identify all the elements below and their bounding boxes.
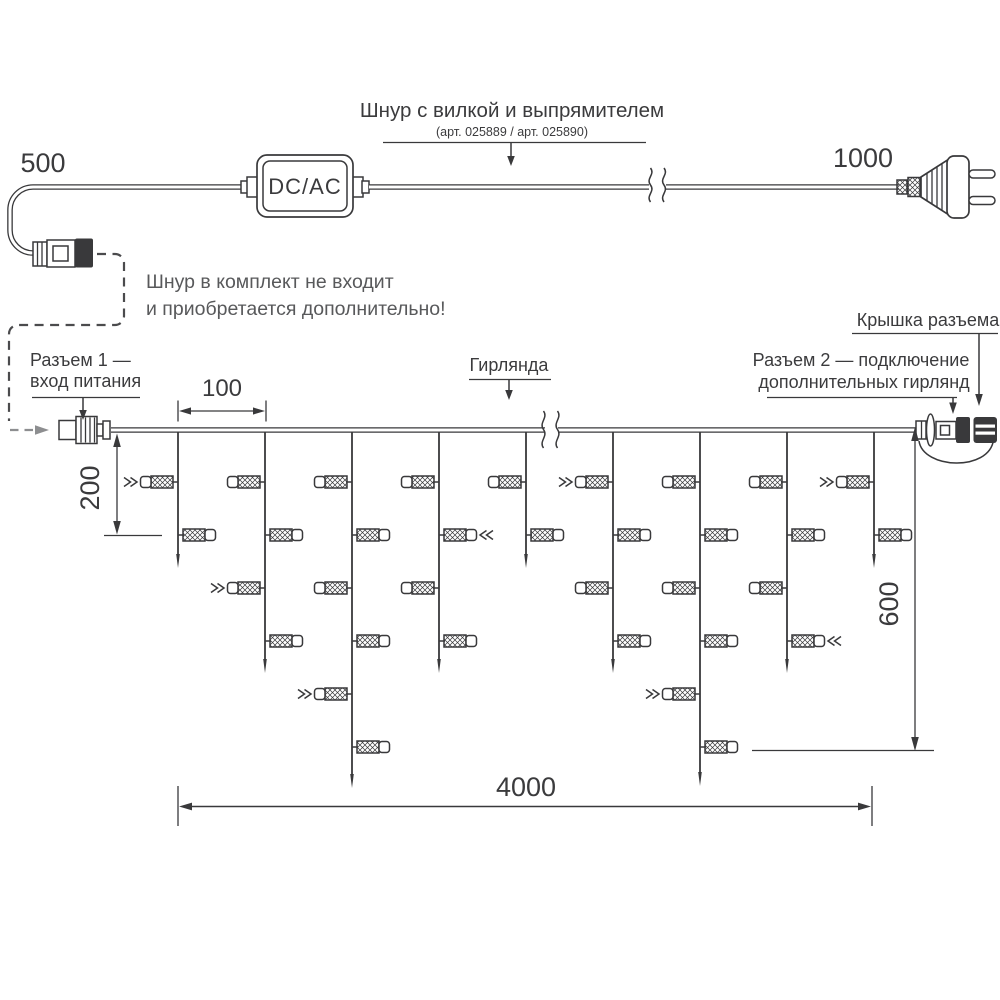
icicle-drops-layer [124,432,912,788]
lamp-body [586,476,608,488]
lamp-body [705,529,727,541]
lamp-body [270,529,292,541]
drop-wire-tip [350,774,354,788]
lamp-tip [837,477,848,488]
lamp-body [673,688,695,700]
dimension-4000: 4000 [178,772,872,826]
lamp-tip [750,477,761,488]
lamp-body [760,582,782,594]
cord-length-right-label: 1000 [833,143,893,173]
drop-wire-tip [872,554,876,568]
lamp-body [444,529,466,541]
lamp-tip [727,742,738,753]
lamp-tip [750,583,761,594]
lamp-body [879,529,901,541]
not-included-note-line1: Шнур в комплект не входит [146,271,394,293]
cable-break-icon [663,168,666,202]
wiring-diagram-canvas: 500 1000 Шнур с вилкой и выпрямителем (а… [0,0,1000,1000]
not-included-note-line2: и приобретается дополнительно! [146,298,446,320]
lamp-tip [576,477,587,488]
connector1-label-line2: вход питания [30,371,141,391]
lamp-body [270,635,292,647]
dimension-200-value: 200 [75,465,105,510]
lamp-tip [315,689,326,700]
flash-marker-icon [646,690,659,699]
lamp-tip [292,530,303,541]
lamp-tip [814,530,825,541]
unplugged-cord-dashed-path [9,254,124,421]
dimension-600-value: 600 [874,581,904,626]
lamp-body [618,635,640,647]
drop-wire-tip [698,772,702,786]
lamp-tip [814,636,825,647]
connector1-label-group: Разъем 1 — вход питания [30,350,141,420]
lamp-body [792,529,814,541]
lamp-tip [727,636,738,647]
lamp-body [357,741,379,753]
lamp-body [412,582,434,594]
plug-prong [969,170,995,178]
down-arrow-icon [507,156,515,166]
dimension-arrow-icon [858,803,871,811]
down-arrow-icon [505,390,513,400]
lamp-tip [489,477,500,488]
output-connector [956,417,970,443]
cord-title: Шнур с вилкой и выпрямителем [360,99,664,122]
lamp-body [586,582,608,594]
lamp-body [618,529,640,541]
flash-marker-icon [480,531,493,540]
dimension-arrow-icon [113,521,121,535]
lamp-tip [379,742,390,753]
lamp-body [357,635,379,647]
dimension-arrow-icon [253,407,265,414]
drop-wire-tip [263,659,267,673]
connector2-label-group: Разъем 2 — подключение дополнительных ги… [753,350,970,414]
lamp-body [673,476,695,488]
dimension-arrow-icon [911,737,919,751]
lamp-tip [727,530,738,541]
lamp-tip [402,477,413,488]
flash-marker-icon [211,584,224,593]
lamp-body [847,476,869,488]
lamp-tip [663,477,674,488]
drop-wire-tip [437,659,441,673]
cord-length-left-label: 500 [20,148,65,178]
lamp-body [673,582,695,594]
dimension-100-value: 100 [202,375,242,402]
flash-marker-icon [820,478,833,487]
cable-break-icon [649,168,652,202]
lamp-tip [315,583,326,594]
dimension-4000-value: 4000 [496,772,556,802]
connector2-label-line2: дополнительных гирлянд [758,372,970,392]
connector2-label-line1: Разъем 2 — подключение [753,350,970,370]
lamp-tip [466,636,477,647]
lamp-tip [663,583,674,594]
drop-wire-tip [176,554,180,568]
lamp-body [357,529,379,541]
garland-label-group: Гирлянда [469,355,551,400]
lamp-body [183,529,205,541]
drop-wire-tip [611,659,615,673]
lamp-body [499,476,521,488]
output-connector-assembly [916,414,997,463]
lamp-tip [576,583,587,594]
flash-marker-icon [828,637,841,646]
lamp-tip [228,583,239,594]
garland-label: Гирлянда [470,355,550,375]
lamp-body [705,635,727,647]
lamp-tip [379,530,390,541]
dimension-100: 100 [178,375,266,422]
lamp-tip [141,477,152,488]
lamp-tip [205,530,216,541]
down-arrow-icon [949,403,957,415]
cord-subtitle: (арт. 025889 / арт. 025890) [436,125,588,139]
input-connector [59,417,110,444]
lamp-tip [292,636,303,647]
lamp-body [760,476,782,488]
plug-prong [969,197,995,205]
lamp-tip [379,636,390,647]
lamp-tip [315,477,326,488]
lamp-body [792,635,814,647]
connector-cap [974,417,998,443]
dc-output-connector [33,239,93,268]
lamp-body [444,635,466,647]
connector1-label-line1: Разъем 1 — [30,350,131,370]
flash-marker-icon [298,690,311,699]
lamp-body [325,582,347,594]
converter-label: DC/AC [268,174,341,199]
flash-marker-icon [124,478,137,487]
lamp-tip [228,477,239,488]
lamp-tip [901,530,912,541]
dc-ac-converter: DC/AC [241,155,369,217]
down-arrow-icon [975,394,983,406]
lamp-tip [466,530,477,541]
drop-wire-tip [785,659,789,673]
garland-section: Разъем 1 — вход питания Гирлянда Крышка … [30,310,1000,826]
lamp-body [238,476,260,488]
lamp-tip [640,530,651,541]
lamp-tip [553,530,564,541]
lamp-tip [640,636,651,647]
connect-direction-arrow-icon [35,425,49,435]
lamp-body [238,582,260,594]
flash-marker-icon [559,478,572,487]
euro-plug [897,156,995,218]
lamp-tip [663,689,674,700]
cap-label: Крышка разъема [857,310,1000,330]
dimension-arrow-icon [179,407,191,414]
cord-right-segment [369,168,899,202]
lamp-body [325,688,347,700]
dimension-arrow-icon [179,803,192,811]
lamp-tip [402,583,413,594]
dimension-arrow-icon [113,434,121,448]
drop-wire-tip [524,554,528,568]
lamp-body [531,529,553,541]
lamp-body [412,476,434,488]
lamp-body [151,476,173,488]
lamp-body [325,476,347,488]
lamp-body [705,741,727,753]
